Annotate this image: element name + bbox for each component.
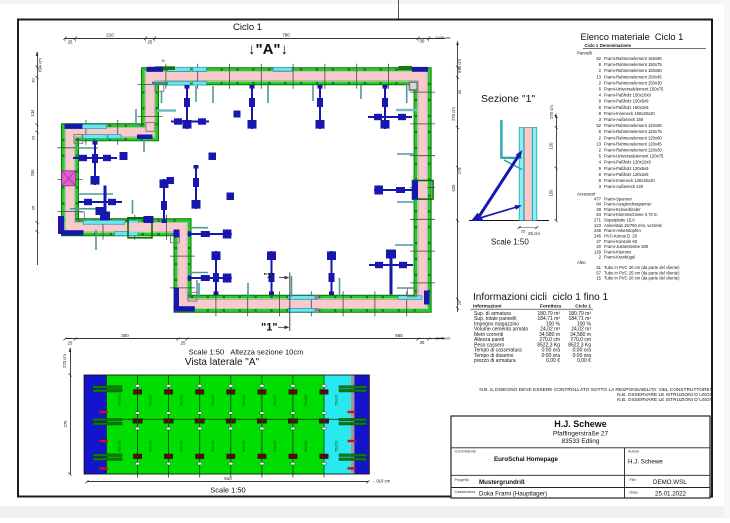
svg-text:Frami-Rahmenelement 120x75: Frami-Rahmenelement 120x75	[604, 129, 662, 134]
svg-text:N.B. OSSERVARE LE ISTRUZIONI D: N.B. OSSERVARE LE ISTRUZIONI D´USO!	[617, 397, 711, 403]
svg-text:15: 15	[596, 276, 601, 281]
svg-text:25: 25	[148, 40, 153, 45]
svg-text:DEMO.WSL: DEMO.WSL	[653, 479, 687, 486]
svg-text:Frami-Justierstrebe 260: Frami-Justierstrebe 260	[604, 244, 649, 249]
svg-text:← 1045 cm: ← 1045 cm	[430, 35, 451, 40]
svg-text:File:: File:	[630, 478, 637, 482]
svg-text:Ciclo 1: Ciclo 1	[575, 304, 591, 310]
svg-text:Frami-Klemme: Frami-Klemme	[604, 249, 632, 254]
svg-text:30: 30	[420, 39, 425, 44]
svg-text:90x150: 90x150	[180, 440, 184, 451]
svg-text:83533 Edling: 83533 Edling	[562, 438, 600, 445]
svg-text:620: 620	[451, 184, 456, 192]
svg-text:25: 25	[457, 300, 462, 305]
svg-text:Mustergrundriß: Mustergrundriß	[479, 479, 525, 486]
svg-text:90x150: 90x150	[211, 440, 215, 451]
svg-text:27: 27	[596, 239, 601, 244]
svg-text:Frami-Ausgleichsspanner: Frami-Ausgleichsspanner	[604, 202, 652, 207]
svg-text:Vista laterale "A": Vista laterale "A"	[185, 357, 260, 368]
svg-text:Frami-Rahmenelement 120x90: Frami-Rahmenelement 120x90	[604, 123, 662, 128]
svg-text:246: 246	[594, 234, 602, 239]
svg-text:25.01.2022: 25.01.2022	[655, 491, 687, 498]
svg-text:Fornitura: Fornitura	[540, 304, 561, 310]
svg-text:134: 134	[30, 109, 35, 117]
svg-text:270 cm: 270 cm	[549, 105, 554, 119]
svg-text:Frami-Konsole 60: Frami-Konsole 60	[604, 239, 638, 244]
svg-text:"1": "1"	[261, 322, 278, 334]
svg-text:Frami-Rahmenelement 150x75: Frami-Rahmenelement 150x75	[604, 62, 662, 67]
svg-text:694 cm: 694 cm	[38, 58, 43, 72]
svg-text:Sezione "1": Sezione "1"	[481, 93, 535, 105]
svg-text:prezzo di armatura: prezzo di armatura	[474, 358, 516, 364]
svg-text:Frami-Eckverbinder: Frami-Eckverbinder	[604, 207, 641, 212]
svg-text:Progetto: Progetto	[455, 478, 469, 482]
svg-text:Scale 1:50 Altezza sezione 1: Scale 1:50 Altezza sezione 10cm	[189, 348, 304, 357]
svg-text:Committente: Committente	[455, 450, 477, 454]
svg-text:Accessori: Accessori	[577, 191, 595, 196]
svg-text:Altro: Altro	[577, 260, 586, 265]
svg-text:30: 30	[420, 340, 425, 345]
svg-text:Frami-Universalelement 150x75: Frami-Universalelement 150x75	[604, 87, 664, 92]
svg-text:Frami-Paßholz 120x10x9: Frami-Paßholz 120x10x9	[604, 160, 651, 165]
svg-text:Frami-Paßholz 150x10x9: Frami-Paßholz 150x10x9	[604, 93, 651, 98]
svg-text:25: 25	[68, 40, 73, 45]
svg-text:Frami-Inneneck 120x20x20: Frami-Inneneck 120x20x20	[604, 178, 655, 183]
svg-text:90x150: 90x150	[273, 440, 277, 451]
svg-text:↓"A"↓: ↓"A"↓	[248, 41, 288, 58]
svg-text:Informazioni cicli ciclo 1 fi: Informazioni cicli ciclo 1 fino 1	[473, 292, 608, 303]
svg-text:Ankerstab 15/750 mm, verzinkt: Ankerstab 15/750 mm, verzinkt	[604, 223, 663, 228]
svg-text:Frami-Paßholz 120x2x9: Frami-Paßholz 120x2x9	[604, 172, 649, 177]
svg-text:Casseratura: Casseratura	[455, 490, 477, 494]
svg-text:Frami-Rahmenelement 150x45: Frami-Rahmenelement 150x45	[604, 74, 662, 79]
svg-text:Denominazione: Denominazione	[600, 43, 632, 48]
svg-text:13: 13	[596, 74, 601, 79]
svg-text:75x120: 75x120	[334, 394, 338, 405]
svg-text:Doka Frami (Hauptlager): Doka Frami (Hauptlager)	[479, 491, 547, 498]
svg-text:270: 270	[63, 420, 68, 428]
svg-text:90x120: 90x120	[273, 394, 277, 405]
svg-text:0,00 €: 0,00 €	[577, 358, 591, 364]
svg-text:25: 25	[31, 205, 36, 210]
svg-text:90x120: 90x120	[118, 394, 122, 405]
svg-text:90x120: 90x120	[211, 394, 215, 405]
svg-text:Elenco materiale Ciclo 1: Elenco materiale Ciclo 1	[581, 32, 684, 42]
svg-text:→ 910 cm: → 910 cm	[371, 479, 391, 484]
svg-text:30: 30	[31, 78, 36, 83]
svg-text:270 cm: 270 cm	[451, 107, 456, 121]
svg-text:Frami-Universalelement 120x75: Frami-Universalelement 120x75	[604, 154, 664, 159]
svg-text:Scale 1:50: Scale 1:50	[210, 486, 245, 495]
svg-text:Frami-Rahmenelement 150x90: Frami-Rahmenelement 150x90	[604, 56, 662, 61]
svg-text:H.J. Schewe: H.J. Schewe	[554, 419, 607, 429]
svg-text:246: 246	[594, 228, 602, 233]
svg-text:Frami-Paßholz 150x2x9: Frami-Paßholz 150x2x9	[604, 105, 649, 110]
svg-text:90x120: 90x120	[304, 394, 308, 405]
svg-text:300: 300	[121, 333, 129, 338]
svg-text:Data:: Data:	[630, 491, 639, 495]
svg-text:25: 25	[68, 340, 73, 345]
svg-text:780: 780	[282, 33, 290, 38]
svg-text:Ciclo 1: Ciclo 1	[585, 43, 599, 48]
svg-text:Superplatte 15,0: Superplatte 15,0	[604, 218, 635, 223]
svg-text:477: 477	[594, 196, 602, 201]
svg-text:210: 210	[106, 33, 114, 38]
svg-text:Frami-Klemmschiene 0,70 m: Frami-Klemmschiene 0,70 m	[604, 212, 658, 217]
svg-text:Frami-Inneneck 150x20x20: Frami-Inneneck 150x20x20	[604, 111, 655, 116]
svg-text:62: 62	[596, 56, 601, 61]
svg-text:25: 25	[181, 340, 186, 345]
svg-text:EuroSchal Homepage: EuroSchal Homepage	[494, 456, 559, 463]
svg-text:Frami-Außeneck 150: Frami-Außeneck 150	[604, 117, 644, 122]
svg-text:30: 30	[457, 89, 462, 94]
svg-text:129: 129	[594, 249, 602, 254]
svg-text:150: 150	[549, 189, 554, 197]
svg-text:Frami-Spanner: Frami-Spanner	[604, 196, 633, 201]
svg-text:0,00 €: 0,00 €	[546, 358, 560, 364]
svg-text:90x120: 90x120	[149, 394, 153, 405]
svg-text:90x120: 90x120	[180, 394, 184, 405]
svg-text:20: 20	[31, 135, 36, 140]
svg-text:Tubo in PVC 20 cm (da parte de: Tubo in PVC 20 cm (da parte del cliente)	[604, 276, 680, 281]
svg-text:90x150: 90x150	[304, 440, 308, 451]
svg-text:PVC-Konus D. 20: PVC-Konus D. 20	[604, 234, 638, 239]
svg-text:120: 120	[549, 142, 554, 150]
svg-text:694 cm: 694 cm	[457, 59, 462, 73]
svg-text:Scale 1:50: Scale 1:50	[491, 238, 529, 247]
svg-text:Frami-Paßholz 150x5x9: Frami-Paßholz 150x5x9	[604, 99, 649, 104]
svg-text:Frami-Rahmenelement 150x60: Frami-Rahmenelement 150x60	[604, 68, 662, 73]
svg-text:255: 255	[30, 169, 35, 177]
svg-text:Autore: Autore	[628, 450, 639, 454]
svg-text:52: 52	[596, 123, 601, 128]
svg-text:270: 270	[457, 167, 462, 174]
svg-text:Informazioni: Informazioni	[473, 304, 502, 310]
svg-text:90x150: 90x150	[118, 440, 122, 451]
svg-text:Ciclo 1: Ciclo 1	[233, 22, 262, 33]
svg-text:270 cm: 270 cm	[62, 354, 67, 368]
svg-text:Frami-Rahmenelement 150x30: Frami-Rahmenelement 150x30	[604, 80, 662, 85]
svg-text:28: 28	[596, 207, 601, 212]
svg-text:665: 665	[395, 333, 403, 338]
svg-text:H.J. Schewe: H.J. Schewe	[628, 459, 663, 466]
svg-text:Frami-Rahmenelement 120x30: Frami-Rahmenelement 120x30	[604, 148, 662, 153]
svg-text:90x150: 90x150	[149, 440, 153, 451]
svg-text:Frami-Kranbügel: Frami-Kranbügel	[604, 255, 635, 260]
svg-text:84: 84	[596, 212, 601, 217]
svg-text:"1": "1"	[264, 271, 276, 280]
svg-text:Pannelli: Pannelli	[577, 50, 592, 55]
svg-text:20: 20	[596, 244, 601, 249]
svg-text:Pfaffingerstraße 27: Pfaffingerstraße 27	[553, 431, 609, 438]
svg-text:123: 123	[594, 223, 602, 228]
svg-text:13: 13	[596, 141, 601, 146]
svg-text:Frami-Rahmenelement 120x45: Frami-Rahmenelement 120x45	[604, 141, 662, 146]
svg-text:Frami-Außeneck 120: Frami-Außeneck 120	[604, 184, 644, 189]
svg-text:25 cm: 25 cm	[528, 231, 540, 236]
svg-text:25: 25	[521, 230, 525, 234]
svg-text:10: 10	[161, 59, 165, 63]
svg-text:Frami-Paßholz 120x5x9: Frami-Paßholz 120x5x9	[604, 166, 649, 171]
svg-text:271: 271	[594, 218, 602, 223]
svg-text:75x150: 75x150	[334, 440, 338, 451]
svg-text:Frami-Ankerstopfen: Frami-Ankerstopfen	[604, 228, 641, 233]
svg-text:90x120: 90x120	[242, 394, 246, 405]
svg-text:84: 84	[596, 202, 601, 207]
svg-text:90x150: 90x150	[242, 440, 246, 451]
svg-text:Frami-Rahmenelement 120x60: Frami-Rahmenelement 120x60	[604, 135, 662, 140]
svg-text:← 1045 cm: ← 1045 cm	[430, 336, 451, 341]
svg-text:910: 910	[224, 476, 232, 481]
